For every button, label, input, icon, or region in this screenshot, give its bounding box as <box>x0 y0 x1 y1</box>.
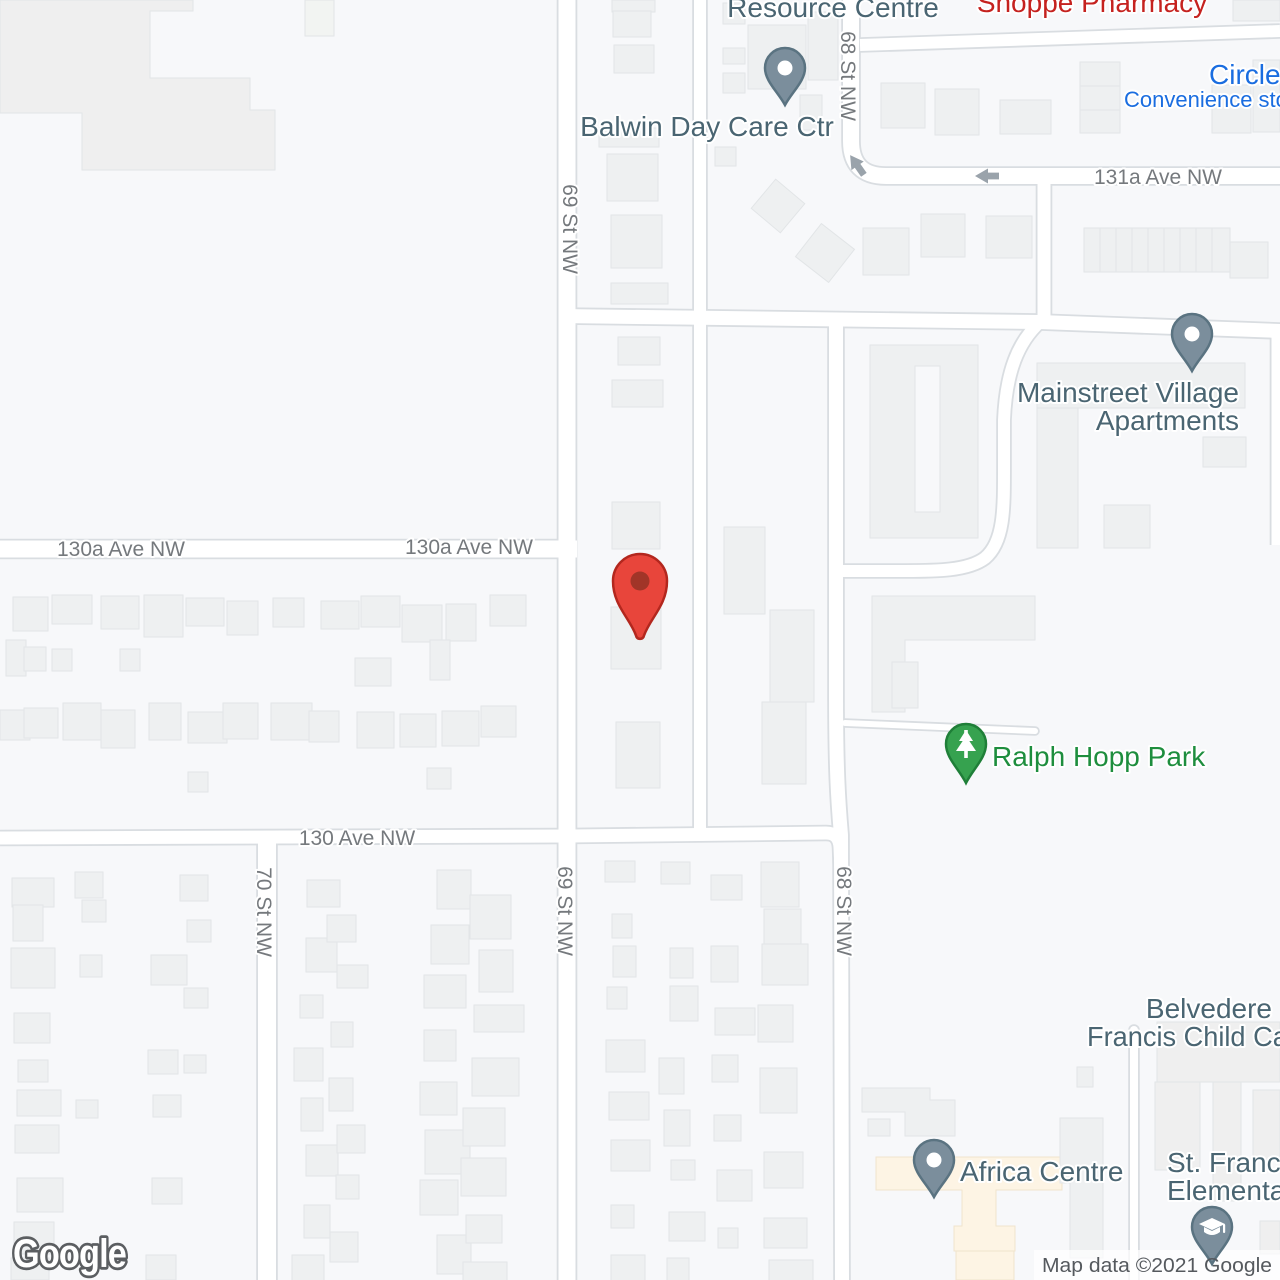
svg-text:Resource Centre: Resource Centre <box>727 0 939 23</box>
svg-text:Shoppe Pharmacy: Shoppe Pharmacy <box>977 0 1207 18</box>
svg-text:130a Ave NW: 130a Ave NW <box>57 538 185 561</box>
svg-text:Francis Child Care: Francis Child Care <box>1087 1021 1280 1052</box>
svg-text:Elementary: Elementary <box>1167 1175 1280 1206</box>
svg-text:St. Francis: St. Francis <box>1167 1147 1280 1178</box>
svg-text:Map data ©2021 Google: Map data ©2021 Google <box>1042 1254 1272 1277</box>
svg-text:Google: Google <box>13 1232 126 1276</box>
svg-text:Circle K: Circle K <box>1209 59 1280 90</box>
svg-text:Ralph Hopp Park: Ralph Hopp Park <box>992 741 1206 772</box>
svg-text:130a Ave NW: 130a Ave NW <box>405 536 533 559</box>
svg-text:69 St NW: 69 St NW <box>558 184 581 274</box>
svg-text:130 Ave NW: 130 Ave NW <box>299 827 416 850</box>
svg-text:Convenience store: Convenience store <box>1124 87 1280 112</box>
svg-text:Mainstreet Village: Mainstreet Village <box>1017 377 1239 408</box>
svg-text:70 St NW: 70 St NW <box>252 867 275 957</box>
svg-text:68 St NW: 68 St NW <box>832 866 855 956</box>
svg-text:Balwin Day Care Ctr: Balwin Day Care Ctr <box>580 111 834 142</box>
svg-text:69 St NW: 69 St NW <box>553 866 576 956</box>
svg-text:Africa Centre: Africa Centre <box>960 1156 1123 1187</box>
svg-text:Apartments: Apartments <box>1096 405 1239 436</box>
svg-text:131a Ave NW: 131a Ave NW <box>1094 166 1222 189</box>
svg-text:68 St NW: 68 St NW <box>836 31 859 121</box>
svg-text:Belvedere: Belvedere <box>1146 993 1272 1024</box>
